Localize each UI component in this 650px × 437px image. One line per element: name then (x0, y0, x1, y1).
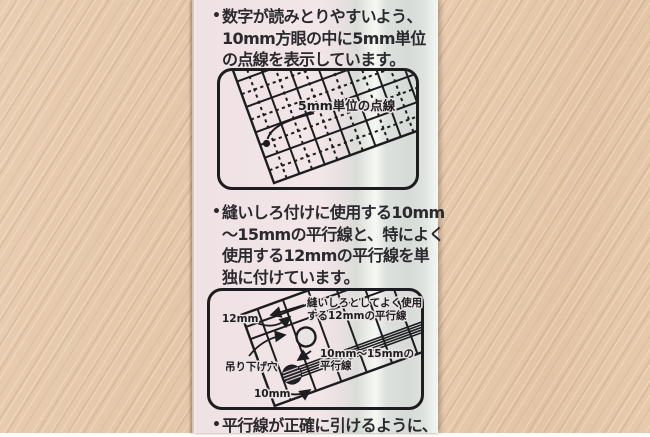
diagram-border (219, 70, 418, 189)
bullet-marker: • (212, 415, 220, 437)
range-label-line2: 平行線 (320, 359, 352, 372)
hanging-hole-label: 吊り下げ穴 (225, 360, 278, 373)
12mm-width-label: 12mm (222, 313, 259, 325)
dotted-line-label: 5mm単位の点線 (298, 98, 396, 113)
text-line: 10mm方眼の中に5mm単位 (222, 28, 438, 50)
hanging-hole (294, 325, 318, 349)
text-line: 数字が読みとりやすいよう、 (222, 6, 438, 28)
dot-marker (263, 140, 270, 147)
tilted-grid (217, 68, 419, 183)
seam-allowance-label-line1: 縫いしろとしてよく使用 (307, 296, 422, 309)
ruler-package-card: • 数字が読みとりやすいよう、 10mm方眼の中に5mm単位 の点線を表示してい… (192, 0, 438, 433)
text-line: 縫いしろ付けに使用する10mm (222, 202, 438, 224)
text-line: 平行線が正確に引けるように、 (222, 415, 438, 437)
text-line: 〜15mmの平行線と、特によく (222, 224, 438, 246)
feature-text-accurate-lines: • 平行線が正確に引けるように、 (192, 415, 438, 437)
feature-text-grid-dots: • 数字が読みとりやすいよう、 10mm方眼の中に5mm単位 の点線を表示してい… (192, 6, 438, 71)
bullet-marker: • (212, 6, 220, 28)
text-line: 独に付けています。 (222, 267, 438, 289)
diagram-ruler-parallel-lines: 12mm 縫いしろとしてよく使用 する12mmの平行線 吊り下げ穴 10mm〜1… (207, 288, 424, 410)
10mm-width-label: 10mm (254, 388, 291, 400)
feature-text-parallel-lines: • 縫いしろ付けに使用する10mm 〜15mmの平行線と、特によく 使用する12… (192, 202, 438, 288)
text-line: 使用する12mmの平行線を単 (222, 245, 438, 267)
range-label-line1: 10mm〜15mmの (320, 348, 414, 360)
diagram-5mm-dotted-grid: 5mm単位の点線 (217, 68, 419, 190)
seam-allowance-label-line2: する12mmの平行線 (307, 309, 407, 322)
bullet-marker: • (212, 202, 220, 224)
